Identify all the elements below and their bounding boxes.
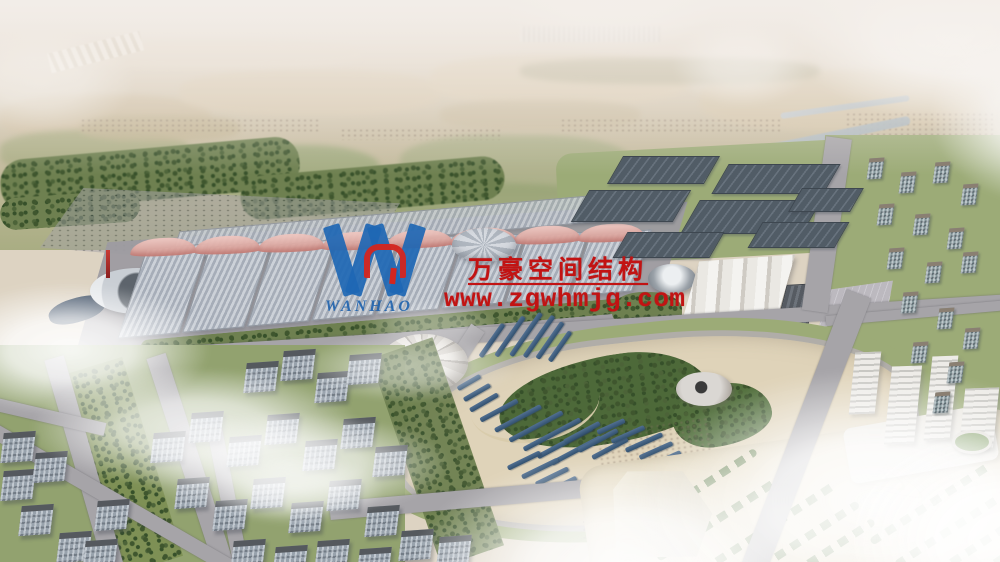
website-url: www.zgwhmjg.com xyxy=(444,284,686,314)
company-name: 万豪空间结构 xyxy=(468,250,648,286)
aerial-render: WANHAO 万豪空间结构 www.zgwhmjg.com xyxy=(0,0,1000,562)
watermark: WANHAO 万豪空间结构 www.zgwhmjg.com xyxy=(0,0,1000,562)
logo-glyph xyxy=(364,244,406,278)
company-logo: WANHAO xyxy=(331,222,431,318)
logo-text: WANHAO xyxy=(325,298,441,316)
